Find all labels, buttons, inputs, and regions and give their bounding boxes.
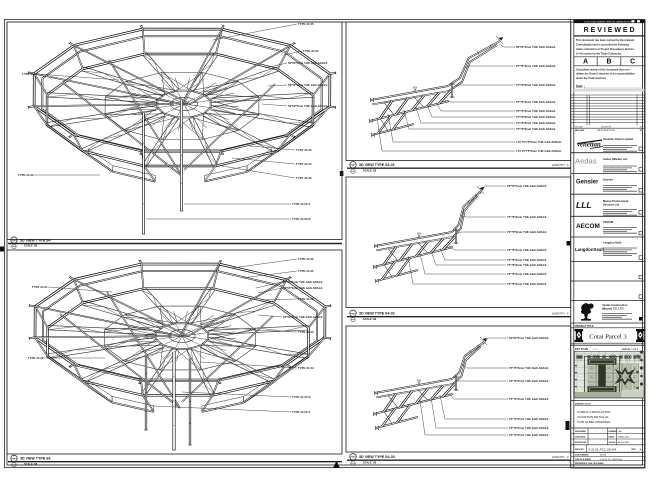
svg-text:SCALE: SCALE <box>609 441 617 444</box>
svg-text:TYPE 34-05: TYPE 34-05 <box>298 269 314 273</box>
svg-text:TYPE 34-04: TYPE 34-04 <box>298 366 314 370</box>
svg-text:DESCRIPTION: DESCRIPTION <box>601 127 611 129</box>
svg-text:1 : 2 5 0 0: 1 : 2 5 0 0 <box>590 349 598 351</box>
svg-text:This document has been revised: This document has been revised by the re… <box>576 38 634 42</box>
svg-text:75*75*6mm THK G&S ANGLE: 75*75*6mm THK G&S ANGLE <box>507 263 547 267</box>
svg-text:50*50*5mm THK G&S ANGLE: 50*50*5mm THK G&S ANGLE <box>516 45 556 49</box>
svg-text:TYPE 34-05 A: TYPE 34-05 A <box>292 202 310 206</box>
svg-text:TYPE 34-05 A: TYPE 34-05 A <box>292 410 310 414</box>
svg-text:Macau Professional: Macau Professional <box>603 199 628 203</box>
svg-text:SCALE 1/8: SCALE 1/8 <box>363 168 377 172</box>
svg-text:Langdon Seah: Langdon Seah <box>603 241 622 245</box>
svg-text:DATE: DATE <box>609 435 615 438</box>
svg-text:50*50*5mm THK G&S ANGLE: 50*50*5mm THK G&S ANGLE <box>288 83 328 87</box>
svg-text:FOR STEEL DRAWING: FOR STEEL DRAWING <box>578 420 611 424</box>
svg-text:SCALE 1/8: SCALE 1/8 <box>363 317 377 321</box>
svg-text:Services Ltd.: Services Ltd. <box>603 202 620 206</box>
svg-text:AECOM: AECOM <box>576 223 600 230</box>
svg-text:3D VIEW TYPE S4: 3D VIEW TYPE S4 <box>20 457 51 461</box>
svg-text:50*50*5mm THK G&S ANGLE: 50*50*5mm THK G&S ANGLE <box>283 286 323 290</box>
svg-text:L75 75*75*6mm THK G&S ANGLE: L75 75*75*6mm THK G&S ANGLE <box>516 140 561 144</box>
svg-text:AS SHOWN: AS SHOWN <box>618 441 630 444</box>
svg-text:75*75*6mm THK G&S ANGLE: 75*75*6mm THK G&S ANGLE <box>516 100 556 104</box>
svg-text:APPROVED: APPROVED <box>575 441 587 444</box>
svg-text:status referred to in Projec: status referred to in Project Procedures… <box>576 47 634 51</box>
svg-text:75*75*6mm THK G&S ANGLE: 75*75*6mm THK G&S ANGLE <box>507 230 547 234</box>
svg-text:50*50*5mm THK G&S ANGLE: 50*50*5mm THK G&S ANGLE <box>283 315 323 319</box>
svg-text:TYPE 34-01: TYPE 34-01 <box>32 285 48 289</box>
svg-text:Yautai Construction: Yautai Construction <box>602 303 628 307</box>
svg-text:REV: REV <box>632 449 637 451</box>
svg-text:50*50*5mm THK G&S ANGLE: 50*50*5mm THK G&S ANGLE <box>283 280 323 284</box>
svg-text:TYPE 34-02: TYPE 34-02 <box>28 356 44 360</box>
svg-text:Aedas: Aedas <box>575 157 597 166</box>
svg-text:75*75*6mm THK G&S ANGLE: 75*75*6mm THK G&S ANGLE <box>516 121 556 125</box>
svg-text:TYPE 34-02: TYPE 34-02 <box>298 297 314 301</box>
svg-text:Consultant review of this do: Consultant review of this document does … <box>576 69 630 72</box>
svg-text:DO NOT SCALE DRAWING. VERIFY A: DO NOT SCALE DRAWING. VERIFY ALL DIMENSI… <box>584 20 635 23</box>
svg-text:under the Trade Contract.: under the Trade Contract. <box>576 77 607 80</box>
svg-text:TYPE 34-05 B: TYPE 34-05 B <box>292 217 311 221</box>
svg-text:75*75*6mm THK G&S ANGLE: 75*75*6mm THK G&S ANGLE <box>507 282 547 286</box>
svg-text:75*75*6mm THK G&S ANGLE: 75*75*6mm THK G&S ANGLE <box>509 417 549 421</box>
svg-text:75*75*6mm THK G&S ANGLE: 75*75*6mm THK G&S ANGLE <box>516 115 556 119</box>
svg-text:3D VIEW TYPE S4-02: 3D VIEW TYPE S4-02 <box>359 312 395 316</box>
svg-text:SCALE 1/8: SCALE 1/8 <box>363 460 377 464</box>
svg-text:75*75*6mm THK G&S ANGLE: 75*75*6mm THK G&S ANGLE <box>507 272 547 276</box>
svg-text:50*50*5mm THK G&S ANGLE: 50*50*5mm THK G&S ANGLE <box>288 61 328 65</box>
svg-text:3D VIEW TYPE S4: 3D VIEW TYPE S4 <box>20 238 51 242</box>
svg-text:CAD: CAD <box>618 430 623 433</box>
svg-text:KEY PLAN: KEY PLAN <box>575 347 588 351</box>
svg-text:LangdonSeah: LangdonSeah <box>575 247 604 252</box>
svg-text:Cotai Parcel 3: Cotai Parcel 3 <box>589 333 627 340</box>
svg-text:TYPE 34-03: TYPE 34-03 <box>296 148 312 152</box>
svg-text:MRK DATE: MRK DATE <box>575 129 585 132</box>
svg-text:75*75*6mm THK G&S ANGLE: 75*75*6mm THK G&S ANGLE <box>509 433 549 437</box>
svg-text:PARCEL 1 OF 2: PARCEL 1 OF 2 <box>622 348 639 351</box>
svg-text:75*75*6mm THK G&S ANGLE: 75*75*6mm THK G&S ANGLE <box>509 397 549 401</box>
svg-text:75*75*6mm THK G&S ANGLE: 75*75*6mm THK G&S ANGLE <box>507 215 547 219</box>
svg-text:PROJECT TITLE: PROJECT TITLE <box>575 325 594 328</box>
svg-text:TYPE 34-03: TYPE 34-03 <box>298 330 314 334</box>
svg-text:75*75*6mm THK G&S ANGLE: 75*75*6mm THK G&S ANGLE <box>516 64 556 68</box>
svg-text:3D VIEW TYPE S4-01: 3D VIEW TYPE S4-01 <box>359 163 395 167</box>
svg-text:3D VIEW TYPE S4-03: 3D VIEW TYPE S4-03 <box>359 455 395 459</box>
svg-text:50*50*5mm THK G&S ANGLE: 50*50*5mm THK G&S ANGLE <box>509 336 549 340</box>
svg-text:SCALE 1/8: SCALE 1/8 <box>24 462 38 466</box>
svg-text:50*50*5mm THK G&S ANGLE: 50*50*5mm THK G&S ANGLE <box>507 184 547 188</box>
svg-text:Gensler: Gensler <box>576 180 599 186</box>
svg-text:QUANTITY : 4: QUANTITY : 4 <box>552 163 569 167</box>
svg-text:TYPE 34-02: TYPE 34-02 <box>303 49 319 53</box>
svg-text:75*75*6mm THK G&S ANGLE: 75*75*6mm THK G&S ANGLE <box>507 258 547 262</box>
svg-text:DRAWING TITLE: DRAWING TITLE <box>575 402 591 405</box>
svg-text:75*75*6mm THK G&S ANGLE: 75*75*6mm THK G&S ANGLE <box>516 109 556 113</box>
svg-text:AECOM: AECOM <box>603 220 614 224</box>
svg-text:Venetian Orient Limited: Venetian Orient Limited <box>603 137 633 141</box>
svg-text:R E V I E W E D: R E V I E W E D <box>584 27 635 34</box>
svg-text:Date :: Date : <box>576 85 585 89</box>
svg-text:TYPE 34-05: TYPE 34-05 <box>296 176 312 180</box>
svg-text:C: C <box>630 59 635 66</box>
svg-text:LLL: LLL <box>576 200 592 210</box>
svg-text:DRAWN: DRAWN <box>609 430 617 433</box>
svg-text:50*50*5mm THK G&S ANGLE: 50*50*5mm THK G&S ANGLE <box>288 104 328 108</box>
svg-text:FOUNTAIN DETAIL 01: FOUNTAIN DETAIL 01 <box>578 415 610 419</box>
svg-text:BY: BY <box>640 127 642 129</box>
svg-text:Gensler: Gensler <box>603 178 613 182</box>
svg-text:SCALE 1/8: SCALE 1/8 <box>24 244 38 248</box>
svg-text:A: A <box>640 447 642 451</box>
svg-text:B: B <box>606 59 611 66</box>
svg-text:A: A <box>583 59 588 66</box>
svg-text:1-MAR-2016: 1-MAR-2016 <box>618 435 631 438</box>
svg-text:TYPE 34-04: TYPE 34-04 <box>296 162 312 166</box>
svg-text:TYPE 34-05 B: TYPE 34-05 B <box>292 395 311 399</box>
svg-text:Aedas (Macau) Ltd.: Aedas (Macau) Ltd. <box>603 157 628 161</box>
svg-text:DESIGNED: DESIGNED <box>575 431 586 433</box>
svg-text:TYPE 34-05: TYPE 34-05 <box>298 22 314 26</box>
svg-text:75*75*6mm THK G&S ANGLE: 75*75*6mm THK G&S ANGLE <box>509 426 549 430</box>
svg-text:5-15.05_PC2_05-004: 5-15.05_PC2_05-004 <box>589 447 617 451</box>
svg-text:QUANTITY : 4: QUANTITY : 4 <box>552 455 569 459</box>
svg-text:5.4 for action by the Tra: 5.4 for action by the Trade Contractor. <box>576 52 622 56</box>
svg-text:relieve the Trade Contracto: relieve the Trade Contractor of its resp… <box>576 73 636 76</box>
svg-text:PUBLIC CIRCULATION: PUBLIC CIRCULATION <box>578 410 611 414</box>
svg-text:QUANTITY : 4: QUANTITY : 4 <box>552 312 569 316</box>
svg-text:Consultant(s) and is accorded: Consultant(s) and is accorded the follow… <box>576 43 629 47</box>
svg-text:DRG NO: DRG NO <box>575 449 584 451</box>
svg-text:75*75*6mm THK G&S ANGLE: 75*75*6mm THK G&S ANGLE <box>516 127 556 131</box>
svg-text:TYPE 34-01: TYPE 34-01 <box>22 72 38 76</box>
svg-text:(Macau) CO. LTD.: (Macau) CO. LTD. <box>602 307 624 311</box>
svg-text:L75 75*75*6mm THK G&S ANGLE: L75 75*75*6mm THK G&S ANGLE <box>516 149 561 153</box>
svg-text:75*75*6mm THK G&S ANGLE: 75*75*6mm THK G&S ANGLE <box>509 379 549 383</box>
svg-text:75*75*6mm THK G&S ANGLE: 75*75*6mm THK G&S ANGLE <box>516 83 556 87</box>
svg-text:D E S C R I P T I O N: D E S C R I P T I O N <box>597 130 615 132</box>
svg-text:CHECKED: CHECKED <box>575 436 586 438</box>
svg-text:TYPE 34-02: TYPE 34-02 <box>298 257 314 261</box>
svg-text:TYPE 34-02: TYPE 34-02 <box>18 173 34 177</box>
svg-text:75*75*6mm THK G&S ANGLE: 75*75*6mm THK G&S ANGLE <box>507 248 547 252</box>
svg-text:75*75*6mm THK G&S ANGLE: 75*75*6mm THK G&S ANGLE <box>509 366 549 370</box>
